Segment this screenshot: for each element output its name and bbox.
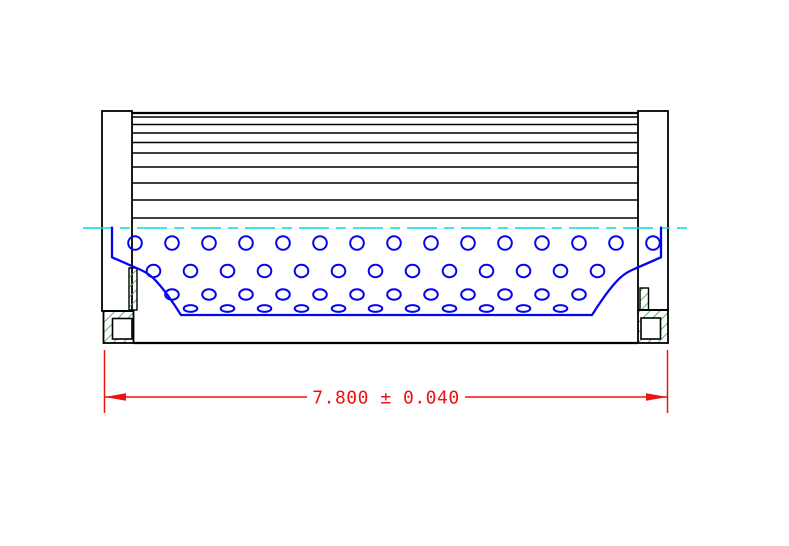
perforation-hole bbox=[313, 236, 327, 250]
perforation-hole bbox=[517, 305, 531, 312]
left-arrowhead-icon bbox=[105, 393, 127, 401]
left-foot-pocket bbox=[113, 319, 133, 340]
perforation-hole bbox=[276, 289, 290, 299]
perforation-hole bbox=[221, 305, 235, 312]
perforation-hole bbox=[369, 265, 383, 277]
perforation-hole bbox=[572, 236, 586, 250]
drawing-canvas: 7.800 ± 0.040 bbox=[0, 0, 789, 546]
perforation-hole bbox=[202, 236, 216, 250]
perforation-hole bbox=[313, 289, 327, 299]
perforation-hole bbox=[424, 236, 438, 250]
perforation-hole bbox=[387, 236, 401, 250]
perforation-hole bbox=[554, 305, 568, 312]
dimension-text: 7.800 ± 0.040 bbox=[312, 388, 459, 409]
perforation-hole bbox=[165, 236, 179, 250]
perforation-hole bbox=[295, 265, 309, 277]
perforation-hole bbox=[591, 265, 605, 277]
perforation-hole bbox=[350, 236, 364, 250]
perforation-hole bbox=[295, 305, 309, 312]
perforation-hole bbox=[498, 236, 512, 250]
right-seal-channel-hatched bbox=[640, 288, 649, 310]
perforation-hole bbox=[572, 289, 586, 299]
left-end-cap-plate bbox=[102, 111, 132, 311]
perforation-hole bbox=[258, 265, 272, 277]
perforation-hole bbox=[202, 289, 216, 299]
perforation-hole bbox=[461, 236, 475, 250]
filter-cross-section-drawing: 7.800 ± 0.040 bbox=[0, 0, 789, 546]
perforation-hole bbox=[332, 265, 346, 277]
perforation-hole bbox=[369, 305, 383, 312]
perforation-hole bbox=[443, 265, 457, 277]
dimension-annotation: 7.800 ± 0.040 bbox=[105, 350, 668, 413]
right-end-cap-plate bbox=[638, 111, 668, 310]
perforation-hole bbox=[424, 289, 438, 299]
perforation-hole bbox=[443, 305, 457, 312]
perforation-hole bbox=[535, 236, 549, 250]
perforation-hole bbox=[258, 305, 272, 312]
perforation-hole bbox=[554, 265, 568, 277]
perforation-hole bbox=[276, 236, 290, 250]
pleated-media-lines bbox=[132, 113, 638, 218]
perforation-hole bbox=[609, 236, 623, 250]
perforation-hole bbox=[498, 289, 512, 299]
perforation-hole bbox=[147, 265, 161, 277]
perforation-holes bbox=[128, 236, 660, 312]
left-seal-channel-hatched bbox=[129, 268, 137, 310]
perforation-hole bbox=[332, 305, 346, 312]
perforation-hole bbox=[461, 289, 475, 299]
right-arrowhead-icon bbox=[646, 393, 668, 401]
perforation-hole bbox=[184, 305, 198, 312]
perforation-hole bbox=[535, 289, 549, 299]
perforation-hole bbox=[406, 265, 420, 277]
perforation-hole bbox=[184, 265, 198, 277]
perforation-hole bbox=[517, 265, 531, 277]
perforation-hole bbox=[350, 289, 364, 299]
perforation-hole bbox=[239, 236, 253, 250]
right-foot-pocket bbox=[641, 318, 661, 339]
core-cutaway-outline bbox=[112, 228, 661, 316]
perforation-hole bbox=[480, 265, 494, 277]
perforation-hole bbox=[406, 305, 420, 312]
perforation-hole bbox=[221, 265, 235, 277]
perforation-hole bbox=[387, 289, 401, 299]
perforation-hole bbox=[480, 305, 494, 312]
perforation-hole bbox=[239, 289, 253, 299]
